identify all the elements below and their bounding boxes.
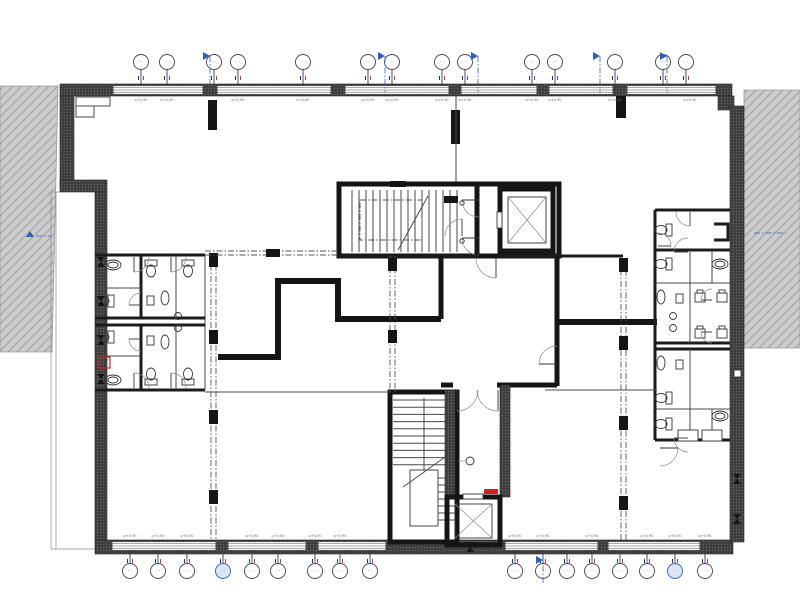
- tag-label: ···: [276, 569, 280, 574]
- window-tag: ···: [548, 55, 563, 85]
- wall-polyline: [714, 224, 728, 240]
- tag-label: ···: [313, 569, 317, 574]
- plan-rect: [388, 258, 397, 271]
- tag-label: ···: [613, 60, 617, 65]
- sink-fixture: [105, 375, 121, 385]
- tag-label: ···: [673, 569, 677, 574]
- plan-rect: [463, 494, 483, 499]
- plan-rect: [410, 470, 438, 526]
- plan-rect: [390, 181, 406, 187]
- plan-rect: [209, 490, 218, 504]
- toilet-fixture: [145, 368, 157, 385]
- window-tag: ···: [679, 55, 694, 85]
- tag-label: ···: [661, 60, 665, 65]
- floor-plan-svg: ········································…: [0, 0, 800, 600]
- tag-label: ···: [513, 569, 517, 574]
- door-swing-icon: [660, 448, 678, 466]
- sill-height-label: p+0,90: [549, 98, 562, 102]
- window-tag: ···: [613, 554, 628, 579]
- plan-rect: [497, 212, 502, 228]
- tag-label: ···: [221, 569, 225, 574]
- neighbor-hatch: [744, 90, 800, 348]
- fixture-circle: [670, 313, 677, 320]
- wall-segment: [60, 180, 107, 192]
- toilet-fixture: [655, 392, 672, 404]
- toilet-fixture: [655, 258, 672, 270]
- sill-height-label: p+0,90: [459, 98, 472, 102]
- tag-label: ···: [185, 569, 189, 574]
- tag-label: ···: [390, 60, 394, 65]
- window-tag: ···: [363, 554, 378, 579]
- window-tag: ···: [435, 55, 450, 85]
- door-swing-icon: [457, 390, 478, 411]
- fixture-circle: [670, 325, 677, 332]
- sill-height-label: p+0,90: [586, 534, 599, 538]
- tag-label: ···: [368, 569, 372, 574]
- tag-label: ···: [338, 569, 342, 574]
- window-tag: ···: [296, 55, 311, 85]
- plan-rect: [678, 430, 698, 441]
- sink-fixture: [105, 260, 121, 270]
- sill-height-label: p+0,90: [526, 98, 539, 102]
- sill-height-label: p+0,90: [181, 534, 194, 538]
- fixture-ellipse: [657, 356, 665, 370]
- neighbor-hatch: [0, 86, 58, 352]
- fixture-circle: [466, 457, 474, 465]
- plan-rect: [208, 100, 217, 130]
- tag-label: ···: [165, 60, 169, 65]
- door-swing-icon: [539, 346, 557, 364]
- window-tag: ···: [207, 55, 222, 85]
- window-tag: ···: [134, 55, 149, 85]
- window-tag: ···: [585, 554, 600, 579]
- fixture-ellipse: [161, 291, 169, 305]
- window-tag: ···: [216, 554, 231, 579]
- floor-plan: ········································…: [0, 0, 800, 600]
- door-swing-icon: [476, 258, 496, 278]
- tag-label: ···: [684, 60, 688, 65]
- window-tag: ···: [160, 55, 175, 85]
- window-tag: ···: [668, 554, 683, 579]
- sill-height-label: p+0,90: [161, 98, 174, 102]
- fixture-ellipse: [161, 335, 169, 349]
- plan-rect: [477, 184, 559, 256]
- plan-rect: [388, 330, 397, 343]
- sill-height-label: p+0,90: [334, 534, 347, 538]
- window-tag: ···: [698, 554, 713, 579]
- sill-height-label: p+0,90: [641, 534, 654, 538]
- tag-label: ···: [463, 60, 467, 65]
- sill-height-label: p+0,90: [246, 534, 259, 538]
- window-tag: ···: [308, 554, 323, 579]
- toilet-fixture: [655, 418, 672, 430]
- sink-fixture: [712, 411, 728, 421]
- sill-height-label: p+0,90: [272, 534, 285, 538]
- wall-segment: [500, 385, 510, 497]
- window-tag: ···: [361, 55, 376, 85]
- window-tag: ···: [458, 55, 473, 85]
- plan-rect: [444, 196, 458, 203]
- plan-rect: [619, 258, 628, 272]
- wall-polyline: [218, 281, 441, 357]
- window-tag: ···: [151, 554, 166, 579]
- tag-label: ···: [301, 60, 305, 65]
- plan-rect: [619, 496, 628, 510]
- sill-height-label: p+0,90: [386, 98, 399, 102]
- plan-rect: [147, 296, 154, 305]
- plan-rect: [209, 410, 218, 424]
- sill-height-label: p+0,90: [609, 98, 622, 102]
- tag-label: ···: [366, 60, 370, 65]
- window-tag: ···: [231, 55, 246, 85]
- tag-label: ···: [530, 60, 534, 65]
- tag-label: ···: [139, 60, 143, 65]
- fixture-ellipse: [657, 290, 665, 304]
- tag-label: ···: [212, 60, 216, 65]
- door-swing-icon: [445, 219, 462, 236]
- tag-label: ···: [703, 569, 707, 574]
- door-swing-icon: [129, 339, 141, 351]
- plan-rect: [360, 200, 422, 240]
- sill-height-label: p+0,90: [135, 98, 148, 102]
- door-swing-icon: [676, 212, 690, 226]
- toilet-fixture: [182, 368, 194, 385]
- door-swing-icon: [477, 390, 498, 411]
- sink-fixture: [712, 259, 728, 269]
- plan-rect: [702, 430, 722, 441]
- plan-rect: [734, 370, 741, 377]
- tag-label: ···: [565, 569, 569, 574]
- tag-label: ···: [645, 569, 649, 574]
- wc-fixture: [717, 290, 727, 302]
- sill-height-label: p+0,90: [537, 534, 550, 538]
- plan-rect: [676, 294, 683, 303]
- sill-height-label: p+0,90: [436, 98, 449, 102]
- window-tag: ···: [271, 554, 286, 579]
- plan-rect: [619, 336, 628, 350]
- tag-label: ···: [618, 569, 622, 574]
- plan-rect: [619, 416, 628, 430]
- plan-rect: [76, 106, 94, 117]
- plan-rect: [147, 336, 154, 345]
- window-tag: ···: [525, 55, 540, 85]
- window-tag: ···: [508, 554, 523, 579]
- sill-height-label: p+0,90: [362, 98, 375, 102]
- tag-label: ···: [250, 569, 254, 574]
- sill-height-label: p+0,90: [669, 534, 682, 538]
- tag-label: ···: [553, 60, 557, 65]
- toilet-fixture: [182, 260, 194, 277]
- sill-height-label: p+0,90: [509, 534, 522, 538]
- layer-plan: [0, 84, 800, 554]
- plan-rect: [209, 330, 218, 344]
- window-tag: ···: [640, 554, 655, 579]
- plan-rect: [266, 249, 280, 257]
- tag-label: ···: [440, 60, 444, 65]
- wall-segment: [445, 390, 455, 497]
- sill-height-label: p+0,90: [297, 98, 310, 102]
- window-tag: ···: [608, 55, 623, 85]
- wall-segment: [95, 192, 107, 542]
- plan-rect: [676, 360, 683, 369]
- sill-height-label: p+0,90: [232, 98, 245, 102]
- sill-height-label: p+0,90: [309, 534, 322, 538]
- tag-label: ···: [128, 569, 132, 574]
- window-tag: ···: [245, 554, 260, 579]
- sill-height-label: p+0,90: [699, 534, 712, 538]
- window-tag: ···: [180, 554, 195, 579]
- red-marker: [484, 489, 498, 494]
- window-tag: ···: [656, 55, 671, 85]
- sill-height-label: p+0,90: [152, 534, 165, 538]
- tag-label: ···: [236, 60, 240, 65]
- sill-height-label: p+0,90: [684, 98, 697, 102]
- sill-height-label: p+0,90: [124, 534, 137, 538]
- plan-line: [398, 196, 428, 250]
- window-tag: ···: [123, 554, 138, 579]
- toilet-fixture: [145, 260, 157, 277]
- window-tag: ···: [385, 55, 400, 85]
- window-tag: ···: [560, 554, 575, 579]
- window-tag: ···: [333, 554, 348, 579]
- tag-label: ···: [590, 569, 594, 574]
- plan-rect: [76, 97, 110, 106]
- tag-label: ···: [156, 569, 160, 574]
- door-swing-icon: [129, 293, 141, 305]
- wc-fixture: [717, 326, 727, 338]
- wall-segment: [60, 96, 74, 188]
